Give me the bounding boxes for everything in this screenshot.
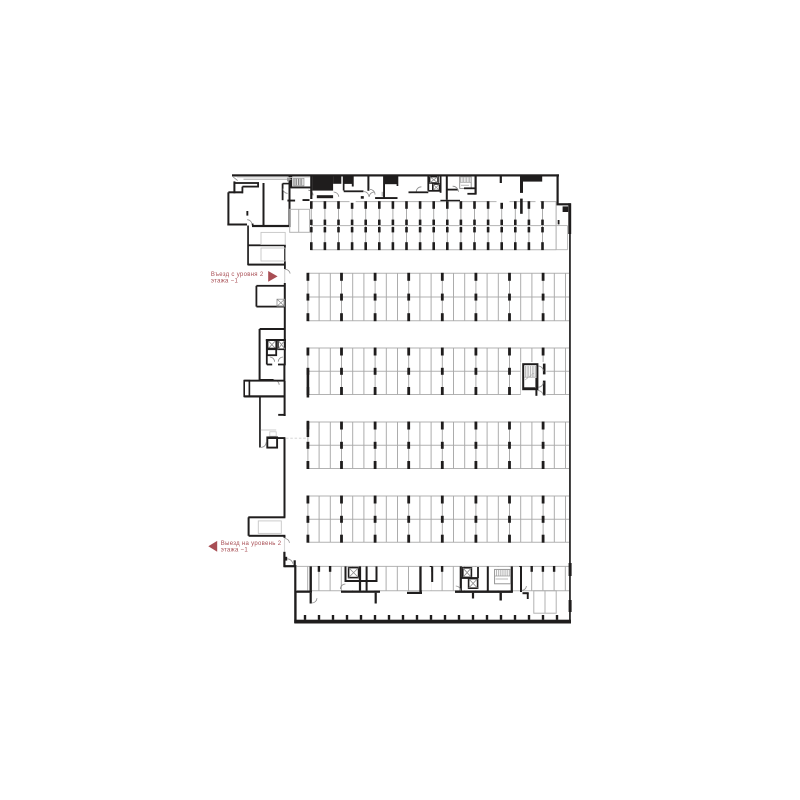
svg-text:этажа −1: этажа −1 [221,548,249,554]
svg-text:этажа −1: этажа −1 [211,279,239,285]
svg-text:Выезд на уровень 2: Выезд на уровень 2 [221,541,282,547]
svg-text:Въезд с уровня 2: Въезд с уровня 2 [211,272,264,278]
